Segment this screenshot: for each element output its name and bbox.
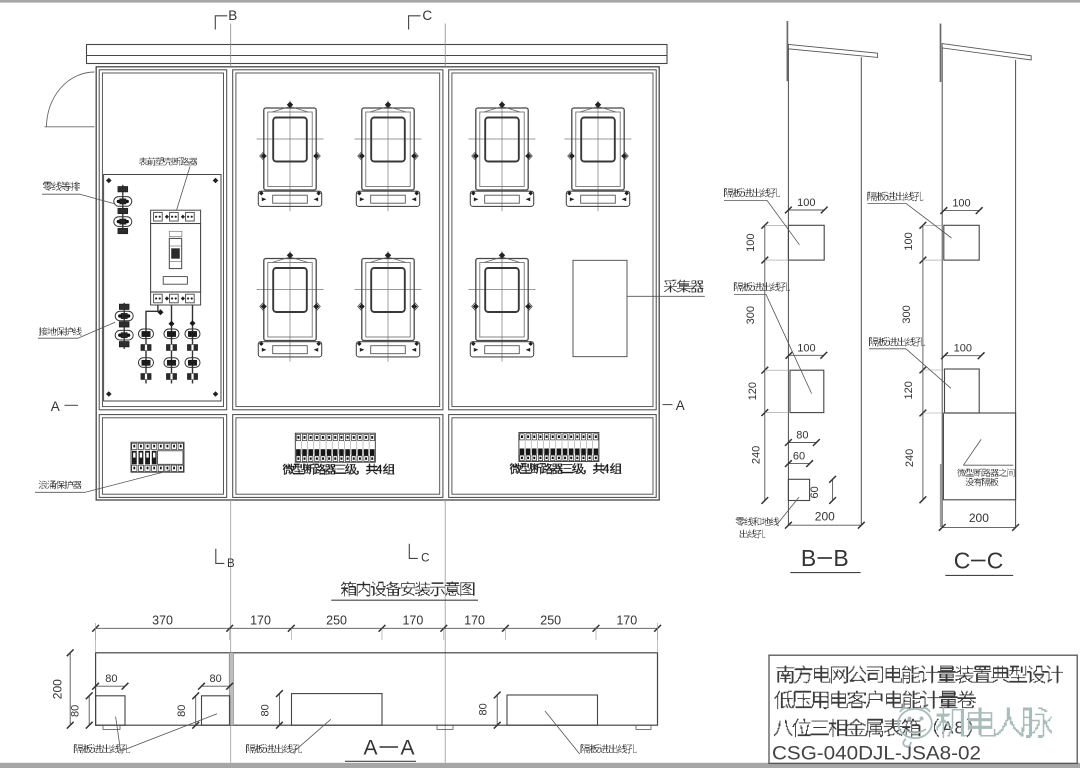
svg-text:300: 300 bbox=[901, 305, 913, 323]
svg-text:B: B bbox=[801, 545, 816, 571]
svg-text:C: C bbox=[421, 552, 429, 564]
svg-text:100: 100 bbox=[745, 234, 757, 252]
svg-text:CSG-040DJL-JSA8-02: CSG-040DJL-JSA8-02 bbox=[772, 743, 981, 765]
svg-text:100: 100 bbox=[797, 343, 815, 355]
svg-text:80: 80 bbox=[260, 704, 272, 716]
svg-text:80: 80 bbox=[69, 705, 81, 717]
svg-text:170: 170 bbox=[250, 614, 271, 628]
svg-text:60: 60 bbox=[809, 486, 821, 498]
svg-text:C: C bbox=[987, 548, 1004, 574]
svg-text:B: B bbox=[833, 545, 848, 571]
svg-text:80: 80 bbox=[176, 705, 188, 717]
svg-text:200: 200 bbox=[815, 509, 835, 523]
svg-text:250: 250 bbox=[540, 614, 561, 628]
svg-text:250: 250 bbox=[326, 614, 347, 628]
svg-text:A: A bbox=[400, 737, 414, 760]
svg-text:120: 120 bbox=[747, 382, 759, 400]
svg-text:100: 100 bbox=[797, 197, 815, 209]
svg-text:C: C bbox=[422, 8, 432, 23]
svg-text:B: B bbox=[227, 558, 235, 570]
svg-text:370: 370 bbox=[152, 614, 173, 628]
svg-text:B: B bbox=[228, 8, 237, 23]
svg-text:80: 80 bbox=[796, 430, 808, 442]
svg-text:170: 170 bbox=[402, 614, 423, 628]
svg-text:A: A bbox=[51, 399, 60, 414]
svg-text:200: 200 bbox=[969, 511, 989, 525]
svg-text:170: 170 bbox=[464, 614, 485, 628]
svg-text:100: 100 bbox=[954, 343, 972, 355]
svg-text:240: 240 bbox=[750, 446, 762, 464]
svg-text:A: A bbox=[676, 398, 685, 413]
svg-text:60: 60 bbox=[793, 451, 805, 463]
svg-text:170: 170 bbox=[616, 614, 637, 628]
svg-text:80: 80 bbox=[209, 673, 221, 685]
svg-text:80: 80 bbox=[477, 703, 489, 715]
svg-text:300: 300 bbox=[745, 306, 757, 324]
svg-text:100: 100 bbox=[952, 198, 970, 210]
svg-text:C: C bbox=[954, 548, 971, 574]
svg-text:240: 240 bbox=[904, 449, 916, 467]
svg-text:100: 100 bbox=[903, 232, 915, 250]
svg-text:200: 200 bbox=[50, 679, 64, 699]
svg-text:120: 120 bbox=[903, 381, 915, 399]
svg-text:80: 80 bbox=[105, 673, 117, 685]
svg-text:A: A bbox=[363, 737, 377, 760]
